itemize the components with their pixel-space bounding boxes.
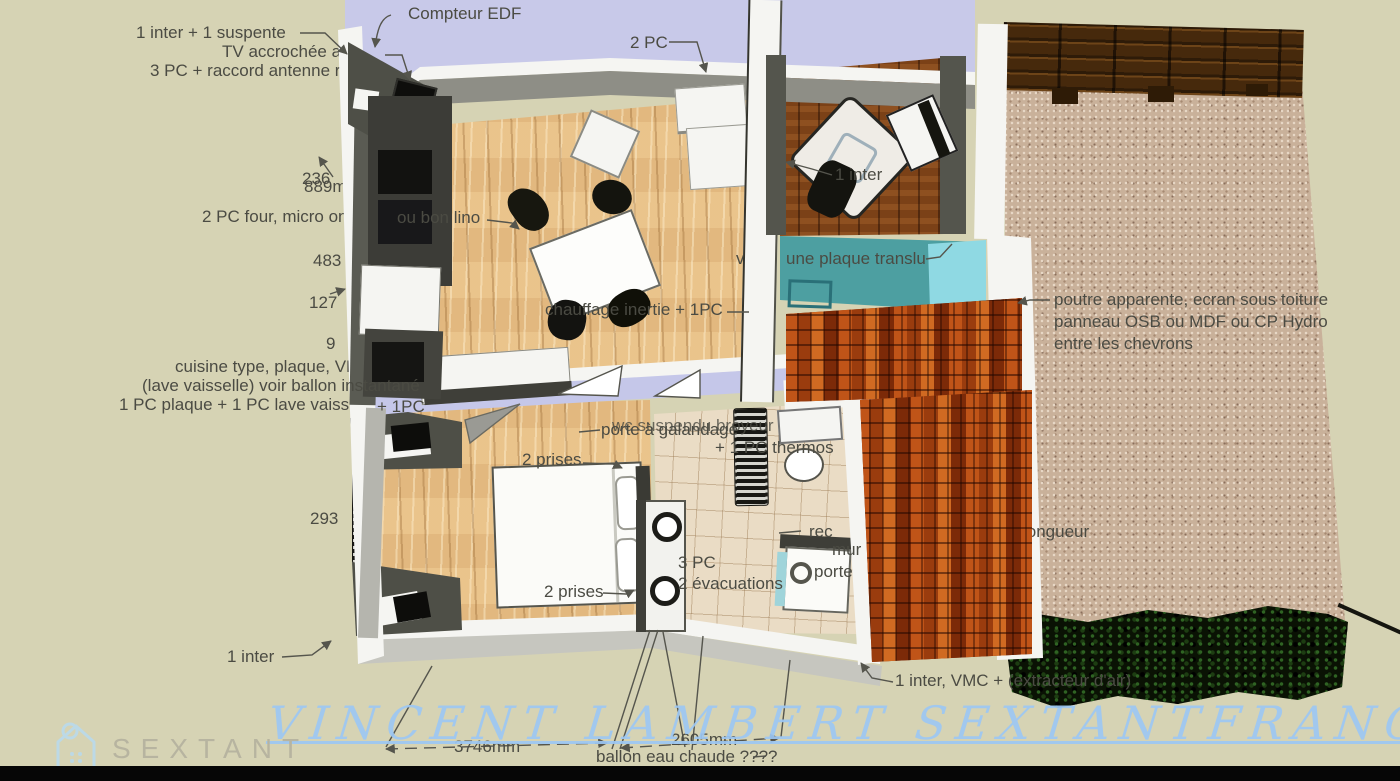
leader-lines (0, 0, 1400, 781)
agency-watermark: VINCENT LAMBERT SEXTANTFRANCE (265, 696, 1400, 750)
sextant-brand-text: SEXTANT (112, 733, 309, 765)
floor-plan-canvas: 1 inter + 1 suspente TV accrochée au 3 P… (0, 0, 1400, 781)
bottom-black-bar (0, 766, 1400, 781)
annotation-ballon: ballon eau chaude ???? (596, 748, 778, 767)
